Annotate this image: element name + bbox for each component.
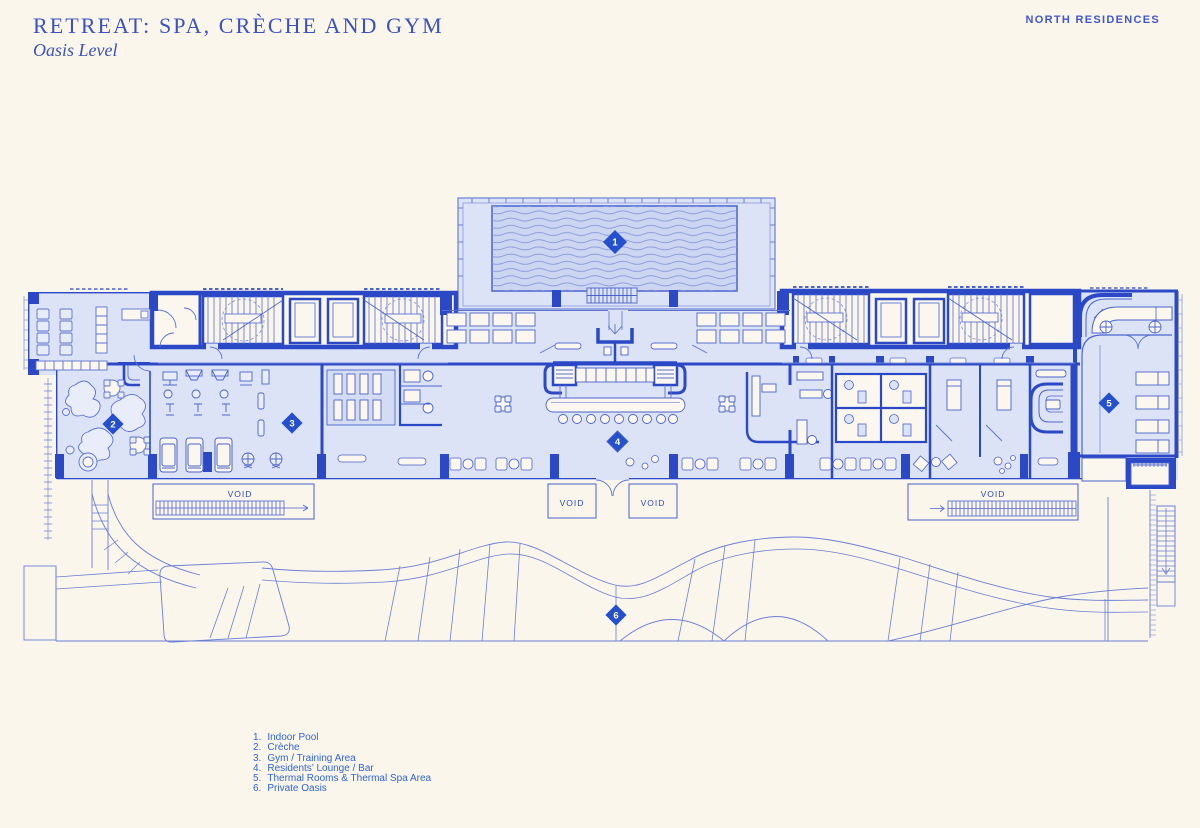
svg-text:4: 4 bbox=[615, 437, 621, 448]
svg-text:2: 2 bbox=[110, 420, 115, 431]
svg-text:VOID: VOID bbox=[560, 498, 585, 508]
svg-text:VOID: VOID bbox=[228, 489, 253, 499]
svg-text:3: 3 bbox=[289, 419, 294, 430]
svg-text:6: 6 bbox=[613, 611, 618, 622]
svg-text:VOID: VOID bbox=[641, 498, 666, 508]
svg-text:1: 1 bbox=[612, 238, 618, 249]
svg-text:5: 5 bbox=[1106, 399, 1112, 410]
svg-text:VOID: VOID bbox=[981, 489, 1006, 499]
